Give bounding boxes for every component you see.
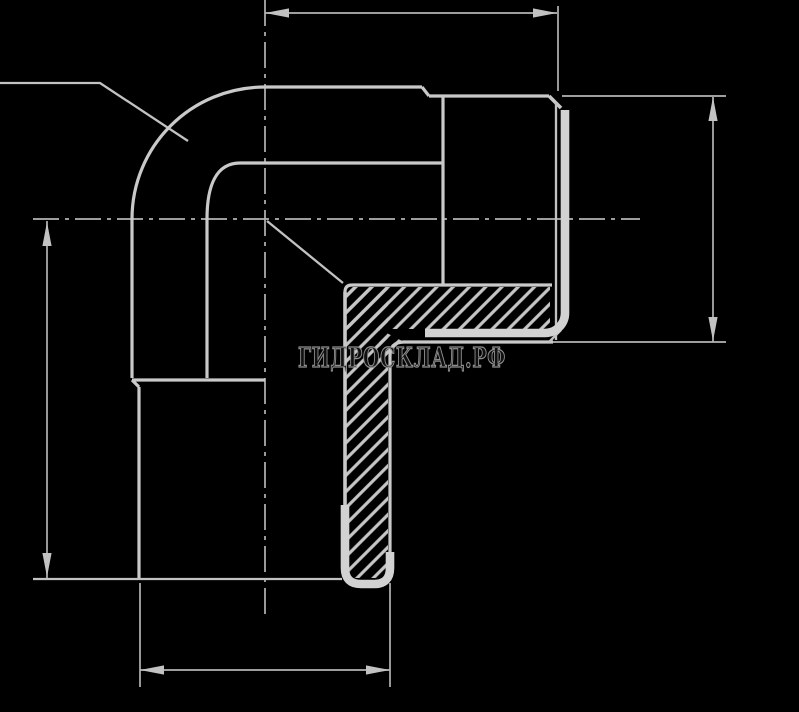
arrow-dim-bottom-right	[366, 665, 390, 674]
elbow-fitting-technical-drawing: ГИДРОСКЛАД.РФ	[0, 0, 799, 712]
outer-bend-arc	[132, 87, 265, 219]
arrow-dim-top-left	[265, 8, 289, 17]
arrow-dim-left-up	[42, 222, 51, 246]
leader-inner-corner	[267, 221, 343, 283]
drawing-canvas: ГИДРОСКЛАД.РФ	[0, 0, 799, 712]
arrow-dim-bottom-left	[140, 665, 164, 674]
watermark-text: ГИДРОСКЛАД.РФ	[298, 343, 506, 374]
arrow-dim-right-down	[708, 317, 717, 341]
arrow-dim-top-right	[533, 8, 557, 17]
arrow-dim-right-up	[708, 97, 717, 121]
step-top	[422, 87, 429, 96]
inner-bend-arc	[207, 163, 240, 219]
leader-upper-left	[0, 83, 188, 141]
arrow-dim-left-down	[42, 553, 51, 577]
